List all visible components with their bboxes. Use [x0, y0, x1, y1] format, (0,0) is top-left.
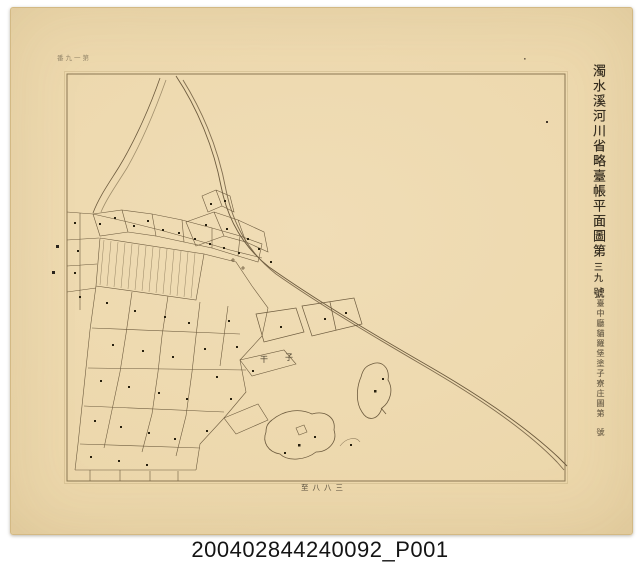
sheet-title: 濁水溪河川省略臺帳平面圖第三九號: [592, 64, 605, 300]
scan-background: { "colors": { "paper": "#ecd7ab", "ink":…: [0, 0, 640, 578]
archive-id-caption: 200402844240092_P001: [0, 537, 640, 563]
sheet-subtitle: 臺中廳貓羅堡塗子寮庄圖第號: [596, 299, 604, 438]
map-place-label: 子: [285, 354, 293, 362]
map-place-label: 干: [260, 356, 268, 364]
map-sheet: 濁水溪河川省略臺帳平面圖第三九號 臺中廳貓羅堡塗子寮庄圖第號 番九一第 至八八三…: [10, 7, 633, 535]
sheet-subtitle-main: 臺中廳貓羅堡塗子寮庄圖第: [596, 299, 605, 419]
sheet-subtitle-unit: 號: [596, 428, 605, 438]
sheet-number: 三九: [593, 262, 603, 284]
top-margin-note: 番九一第: [57, 56, 91, 63]
sheet-title-main: 濁水溪河川省略臺帳平面圖第: [591, 64, 606, 259]
bottom-margin-note: 至八八三: [301, 484, 347, 492]
